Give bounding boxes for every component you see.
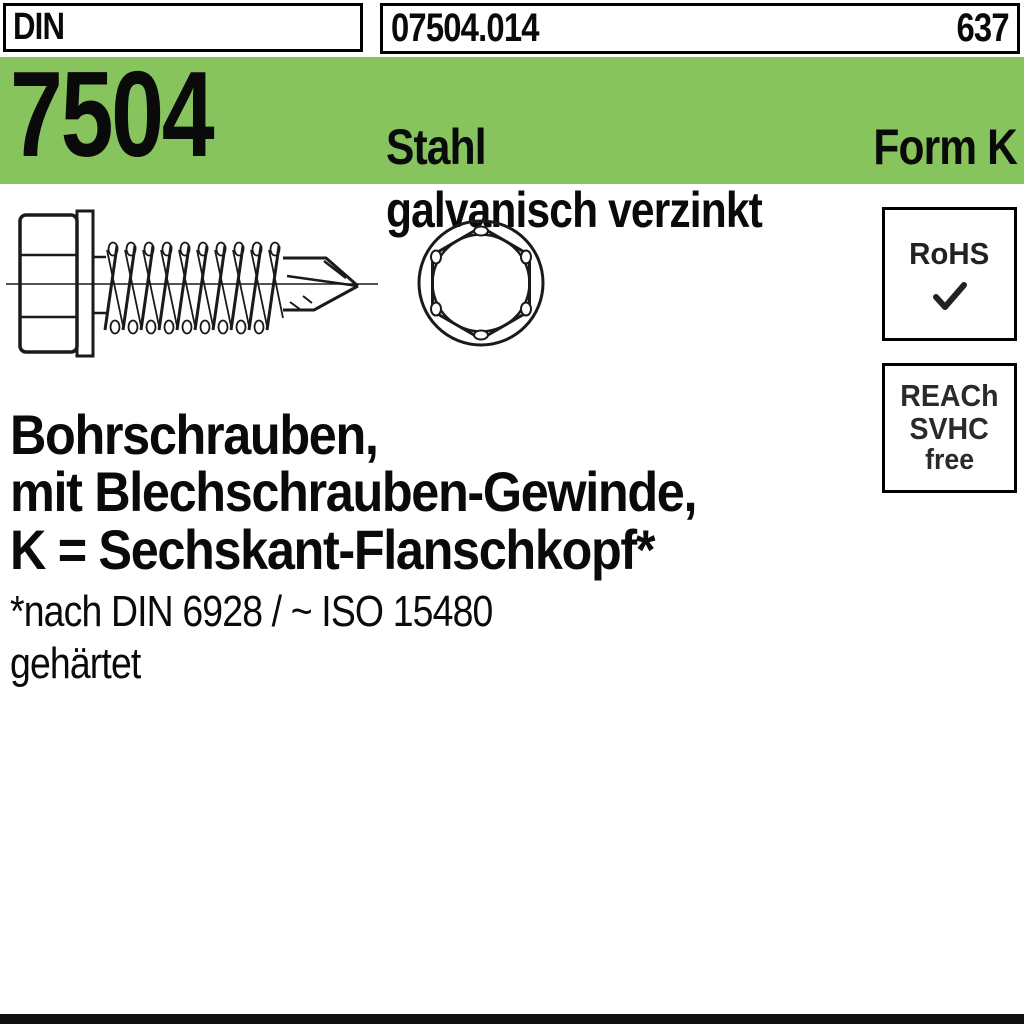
check-icon bbox=[930, 280, 970, 312]
standard-number: 7504 bbox=[10, 43, 212, 186]
product-title-line2: mit Blechschrauben-Gewinde, bbox=[10, 464, 696, 520]
material-label: Stahl bbox=[386, 122, 486, 172]
form-label: Form K bbox=[873, 122, 1017, 172]
footnote-standard-reference: *nach DIN 6928 / ~ ISO 15480 bbox=[10, 590, 492, 634]
bottom-divider-bar bbox=[0, 1014, 1024, 1024]
product-title-line3: K = Sechskant-Flanschkopf* bbox=[10, 522, 654, 578]
title-banner: 7504 Stahl galvanisch verzinkt Form K bbox=[0, 57, 1024, 184]
rohs-label: RoHS bbox=[909, 236, 989, 272]
footnote-hardened: gehärtet bbox=[10, 642, 140, 686]
reach-line1: REACh bbox=[900, 380, 998, 413]
rohs-badge: RoHS bbox=[882, 207, 1017, 341]
product-title-line1: Bohrschrauben, bbox=[10, 407, 378, 463]
reach-line3: free bbox=[925, 445, 974, 475]
screw-top-view-drawing bbox=[415, 215, 551, 351]
article-number: 07504.014 bbox=[391, 6, 539, 51]
screw-side-view-drawing bbox=[6, 202, 380, 372]
reach-badge: REACh SVHC free bbox=[882, 363, 1017, 493]
article-header-box: 07504.014 637 bbox=[380, 3, 1020, 54]
reach-line2: SVHC bbox=[910, 413, 989, 446]
catalog-page: DIN 07504.014 637 7504 Stahl galvanisch … bbox=[0, 0, 1024, 1024]
page-number: 637 bbox=[957, 6, 1009, 51]
